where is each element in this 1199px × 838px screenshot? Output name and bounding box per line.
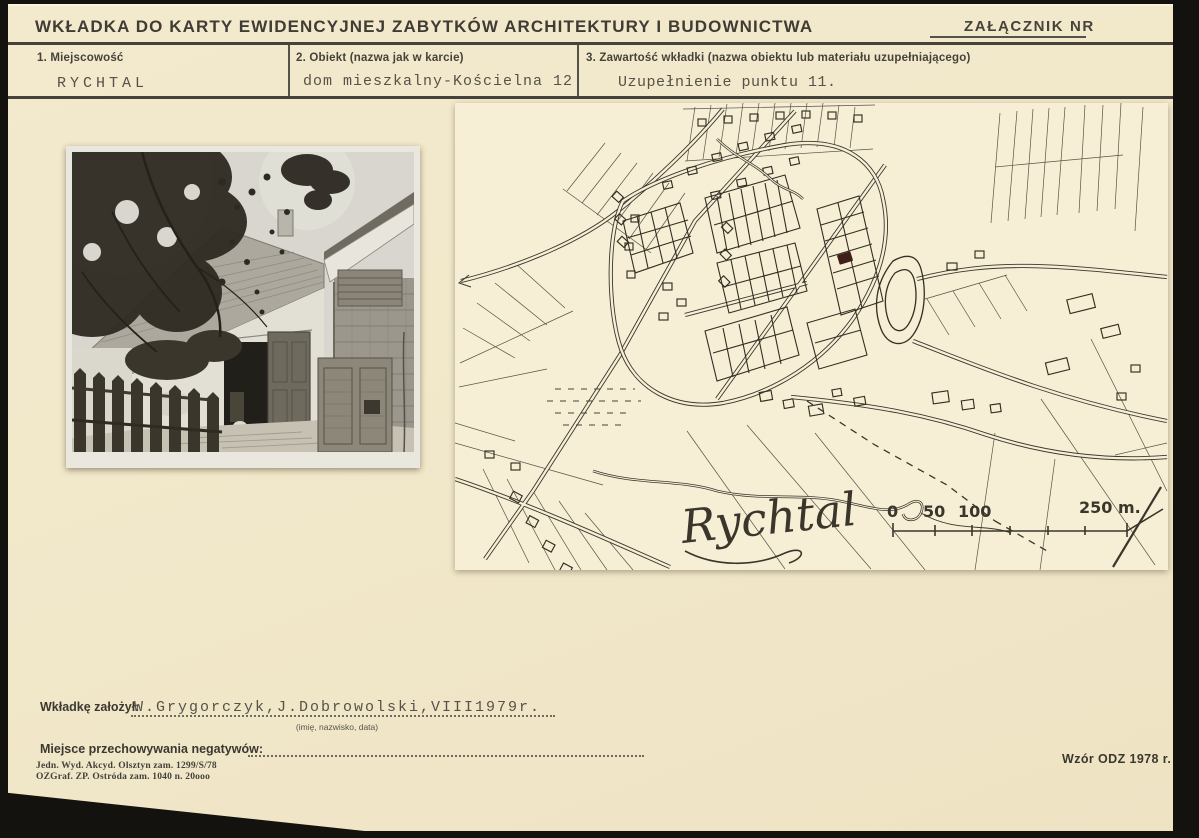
courtyard-photo (72, 152, 414, 452)
header-divider-bottom (8, 96, 1173, 99)
attachment-underline (930, 36, 1086, 38)
scanned-record-card: WKŁADKA DO KARTY EWIDENCYJNEJ ZABYTKÓW A… (0, 0, 1199, 838)
form-code: Wzór ODZ 1978 r. (1062, 752, 1171, 766)
negatives-label: Miejsce przechowywania negatywów: (40, 742, 263, 756)
founder-caption: (imię, nazwisko, data) (252, 722, 422, 732)
field-object-label: 2. Obiekt (nazwa jak w karcie) (296, 52, 464, 64)
photo-print (66, 146, 420, 468)
field-contents-label: 3. Zawartość wkładki (nazwa obiektu lub … (586, 52, 971, 64)
scale-end: 250 m. (1079, 498, 1141, 517)
scale-zero: 0 (887, 502, 898, 521)
founder-value: W.Grygorczyk,J.Dobrowolski,VIII1979r. (134, 699, 541, 716)
negatives-dotted-line (248, 742, 644, 757)
document-title: WKŁADKA DO KARTY EWIDENCYJNEJ ZABYTKÓW A… (35, 17, 813, 37)
scan-corner-shadow (0, 792, 430, 838)
town-plan-sheet: Rychtal 0 50 100 250 m. (455, 103, 1168, 570)
field-separator-1 (288, 45, 290, 96)
field-place-label: 1. Miejscowość (37, 52, 124, 64)
scale-hundred: 100 (958, 502, 991, 521)
town-plan-map: Rychtal 0 50 100 250 m. (455, 103, 1168, 570)
field-object-value: dom mieszkalny-Kościelna 12 (303, 73, 573, 90)
scale-fifty: 50 (923, 502, 945, 521)
field-place-value: RYCHTAL (57, 75, 148, 92)
header-divider-top (8, 42, 1173, 45)
imprint-line-1: Jedn. Wyd. Akcyd. Olsztyn zam. 1299/S/78 (36, 761, 217, 771)
field-contents-value: Uzupełnienie punktu 11. (618, 74, 837, 91)
attachment-number-label: ZAŁĄCZNIK NR (964, 18, 1095, 35)
field-separator-2 (577, 45, 579, 96)
founder-label: Wkładkę założył: (40, 700, 139, 714)
imprint-line-2: OZGraf. ZP. Ostróda zam. 1040 n. 20ooo (36, 772, 210, 782)
